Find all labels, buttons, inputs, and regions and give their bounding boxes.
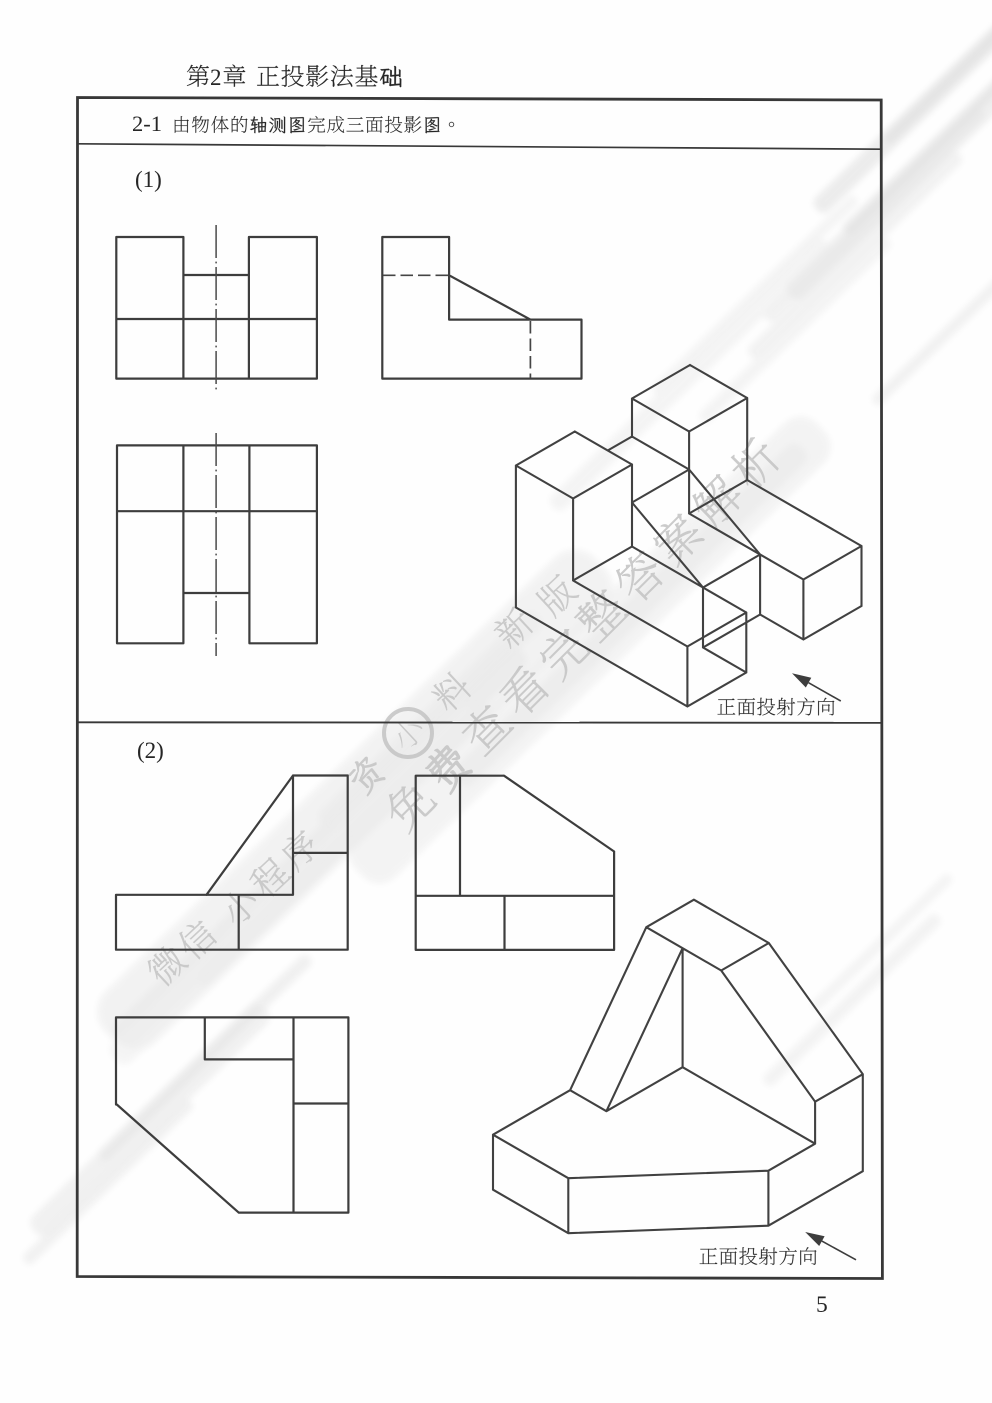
svg-text:(1): (1) <box>135 167 162 192</box>
svg-text:(2): (2) <box>137 738 164 763</box>
svg-text:2: 2 <box>210 65 222 90</box>
svg-text:5: 5 <box>816 1292 828 1318</box>
svg-text:2-1: 2-1 <box>132 111 162 136</box>
